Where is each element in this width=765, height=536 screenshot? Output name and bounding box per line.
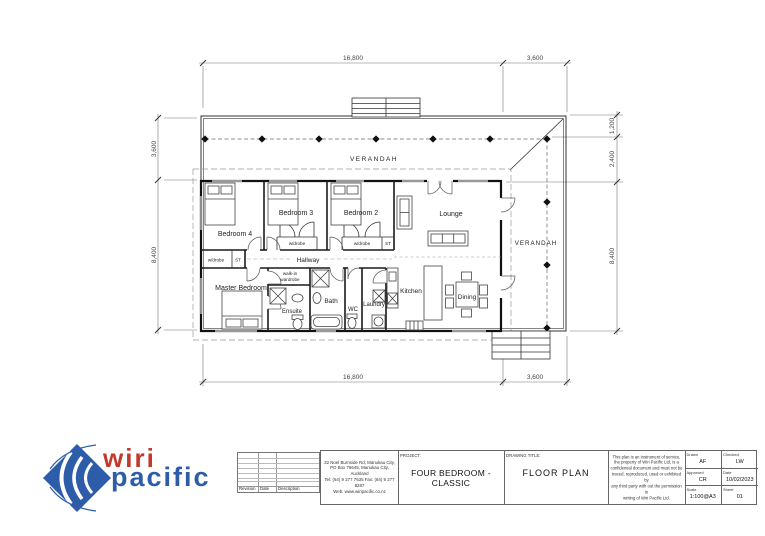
label-bath: Bath bbox=[324, 298, 338, 305]
label-dining: Dining bbox=[458, 294, 477, 301]
disclaimer-line: any third party with out the permission … bbox=[610, 483, 683, 495]
laundry-fixtures bbox=[372, 290, 385, 328]
approved-value: CR bbox=[685, 477, 721, 483]
sheet-field: Sheet 01 bbox=[722, 486, 759, 504]
disclaimer-line: the property of Wiri Pacific Ltd, is a bbox=[610, 460, 683, 466]
bed-master bbox=[222, 291, 262, 329]
label-verandah-right: VERANDAH bbox=[515, 240, 557, 247]
scale-value: 1:100@A3 bbox=[685, 494, 721, 500]
revision-col-header: Revision bbox=[238, 485, 259, 492]
disclaimer-line: confidential document and must not be bbox=[610, 466, 683, 472]
checked-value: LW bbox=[722, 459, 759, 465]
drawing-sheet: 16,800 3,600 16,800 3,600 3,600 8,400 1,… bbox=[0, 0, 765, 536]
dim-right-2: 2,400 bbox=[609, 150, 616, 167]
wc-toilet bbox=[347, 314, 357, 329]
bed-bedroom4 bbox=[205, 183, 235, 225]
drawing-title-cell: DRAWING TITLE: FLOOR PLAN bbox=[504, 451, 609, 504]
label-st-b2: ST bbox=[385, 241, 391, 246]
dim-right-1: 1,200 bbox=[609, 117, 616, 134]
logo-diamond bbox=[43, 444, 111, 512]
label-wardrobe-master: w/drobe bbox=[208, 258, 225, 263]
dim-top-main: 16,800 bbox=[343, 55, 363, 62]
disclaimer-line: writing of Wiri Pacific Ltd. bbox=[610, 495, 683, 501]
label-wc: WC bbox=[348, 307, 359, 313]
bed-bedroom2 bbox=[331, 183, 361, 225]
label-wardrobe-b2: w/drobe bbox=[354, 241, 371, 246]
address-cell: 32 Noel Burnside Rd, Manukau City, PO Bo… bbox=[321, 451, 399, 504]
dim-bottom-right: 3,600 bbox=[527, 374, 544, 381]
drawing-title-label: DRAWING TITLE: bbox=[506, 453, 541, 458]
disclaimer-cell: This plan is an instrument of service, t… bbox=[608, 451, 686, 504]
dim-bottom-main: 16,800 bbox=[343, 374, 363, 381]
approved-label: Approved bbox=[687, 470, 704, 475]
date-value: 10/02/2023 bbox=[722, 477, 759, 483]
address-line: Tel: (64) 9 277 7635 Fax: (64) 9 277 828… bbox=[321, 478, 398, 490]
revision-table: Revision Date Description bbox=[237, 452, 320, 493]
label-verandah-top: VERANDAH bbox=[350, 156, 398, 163]
sheet-label: Sheet bbox=[723, 487, 733, 492]
label-hallway: Hallway bbox=[297, 257, 321, 264]
project-name: FOUR BEDROOM - CLASSIC bbox=[398, 468, 504, 488]
scale-label: Scale bbox=[687, 487, 697, 492]
scale-field: Scale 1:100@A3 bbox=[685, 486, 722, 504]
disclaimer-line: traced, reproduced, used or exhibited by bbox=[610, 472, 683, 484]
dim-right-3: 8,400 bbox=[609, 247, 616, 264]
entry-steps-top bbox=[352, 98, 420, 117]
date-field: Date 10/02/2023 bbox=[722, 469, 759, 487]
label-walkin-1: walk-in bbox=[283, 271, 298, 276]
drawn-value: AF bbox=[685, 459, 721, 465]
drawn-field: Drawn AF bbox=[685, 451, 722, 469]
label-wardrobe-b3: w/drobe bbox=[289, 241, 306, 246]
label-bedroom4: Bedroom 4 bbox=[218, 231, 252, 238]
bed-bedroom3 bbox=[268, 183, 298, 225]
couch-horizontal bbox=[428, 231, 468, 246]
logo-word-pacific: pacific bbox=[111, 464, 211, 491]
steps-bottom-right bbox=[492, 331, 550, 359]
label-bedroom2: Bedroom 2 bbox=[344, 210, 378, 217]
address-line: Web: www.wiripacific.co.nz bbox=[321, 489, 398, 495]
date-col-header: Date bbox=[259, 485, 277, 492]
date-label: Date bbox=[723, 470, 731, 475]
disclaimer-line: This plan is an instrument of service, bbox=[610, 454, 683, 460]
label-walkin-2: wardrobe bbox=[280, 277, 300, 282]
checked-field: Checked LW bbox=[722, 451, 759, 469]
dim-left-main: 8,400 bbox=[151, 246, 158, 263]
label-laundry: Laundry bbox=[363, 302, 385, 308]
label-st-master: ST bbox=[235, 258, 241, 263]
description-col-header: Description bbox=[277, 485, 321, 492]
dim-left-top: 3,600 bbox=[151, 140, 158, 157]
fields-cell: Drawn AF Checked LW Approved CR Date 10/… bbox=[685, 451, 758, 504]
label-ensuite: Ensuite bbox=[282, 309, 303, 315]
checked-label: Checked bbox=[723, 452, 739, 457]
drawing-title: FLOOR PLAN bbox=[504, 468, 608, 478]
couch-vertical bbox=[397, 196, 412, 229]
title-block: 32 Noel Burnside Rd, Manukau City, PO Bo… bbox=[320, 450, 757, 505]
project-label: PROJECT: bbox=[400, 453, 421, 458]
label-lounge: Lounge bbox=[439, 211, 462, 218]
sheet-value: 01 bbox=[722, 494, 759, 500]
address-line: PO Box 76645, Manukau City, Auckland bbox=[321, 466, 398, 478]
label-bedroom3: Bedroom 3 bbox=[279, 210, 313, 217]
kitchen-bench bbox=[387, 266, 442, 330]
approved-field: Approved CR bbox=[685, 469, 722, 487]
project-cell: PROJECT: FOUR BEDROOM - CLASSIC bbox=[398, 451, 505, 504]
label-master-bedroom: Master Bedroom bbox=[215, 285, 267, 292]
dim-top-right: 3,600 bbox=[527, 55, 544, 62]
label-kitchen: Kitchen bbox=[400, 288, 422, 295]
drawn-label: Drawn bbox=[687, 452, 699, 457]
furniture bbox=[205, 183, 488, 330]
